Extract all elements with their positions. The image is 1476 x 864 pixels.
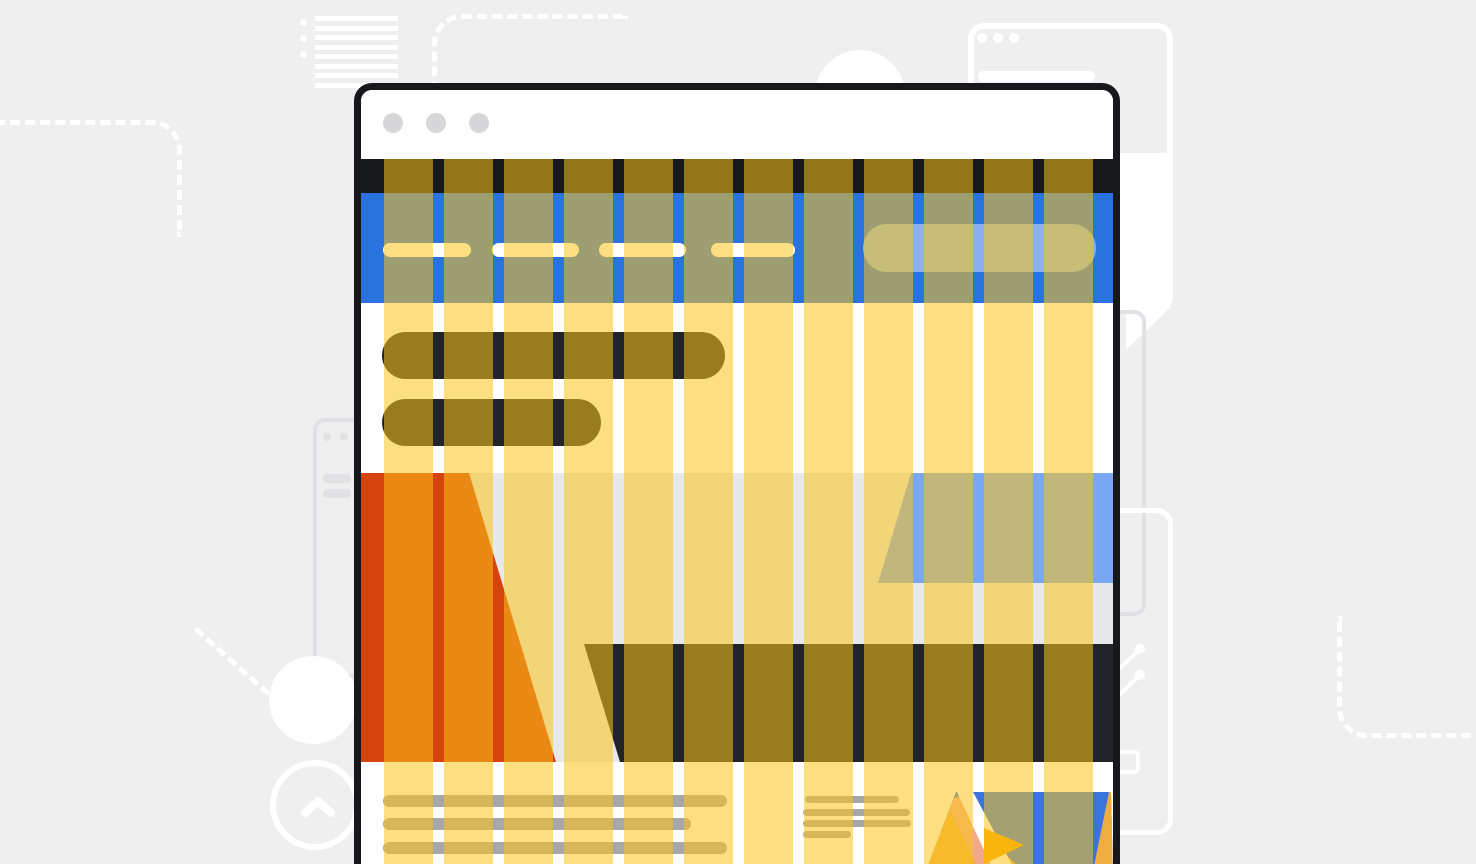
list-icon-line [315, 35, 398, 40]
caption-line [803, 809, 910, 816]
traffic-light-dot [469, 113, 489, 133]
caption-line [803, 820, 911, 827]
nav-link-pill[interactable] [711, 243, 795, 257]
paragraph-line [383, 818, 691, 830]
bubble-traffic-light-dot [993, 33, 1003, 43]
window-titlebar [361, 90, 1113, 159]
image-thumbnail [924, 792, 1113, 864]
left-card-bar [323, 489, 351, 498]
list-icon-line [315, 45, 398, 50]
scroll-top-button[interactable] [270, 760, 360, 850]
list-icon-dot [300, 19, 307, 26]
bubble-url-bar [978, 71, 1095, 82]
list-icon [300, 16, 400, 92]
list-icon-dot [300, 51, 307, 58]
dashed-path-right [1337, 616, 1476, 738]
caption-line [803, 831, 851, 838]
list-icon-line [315, 26, 398, 31]
toolbar-strip [361, 159, 1113, 193]
traffic-light-dot [426, 113, 446, 133]
dashed-diagonal-line [194, 627, 271, 696]
bubble-traffic-light-dot [1009, 33, 1019, 43]
chevron-up-icon [298, 794, 338, 820]
banner-section [361, 473, 1113, 762]
list-icon-dot [300, 35, 307, 42]
nav-link-pill[interactable] [492, 243, 579, 257]
list-icon-line [315, 73, 398, 78]
search-input[interactable] [863, 224, 1096, 272]
paragraph-line [383, 795, 727, 807]
nav-link-pill[interactable] [599, 243, 686, 257]
browser-window [354, 83, 1120, 864]
bubble-traffic-light-dot [977, 33, 987, 43]
left-card-dot [340, 433, 348, 441]
paragraph-line [383, 842, 727, 854]
hero-header [361, 193, 1113, 303]
list-icon-line [315, 16, 398, 21]
nav-link-pill[interactable] [383, 243, 471, 257]
list-icon-line [315, 54, 398, 59]
headline-skeleton-bar [382, 332, 725, 379]
traffic-light-dot [383, 113, 403, 133]
list-icon-line [315, 64, 398, 69]
illustration-canvas [0, 0, 1476, 864]
browser-window-content [361, 90, 1113, 864]
left-card-bar [323, 474, 351, 483]
circle-decoration-left [269, 656, 357, 744]
caption-line [805, 796, 899, 803]
content-section [361, 303, 1113, 473]
headline-skeleton-bar [382, 399, 601, 446]
left-card-dot [323, 433, 331, 441]
dashed-path-left [0, 120, 182, 237]
